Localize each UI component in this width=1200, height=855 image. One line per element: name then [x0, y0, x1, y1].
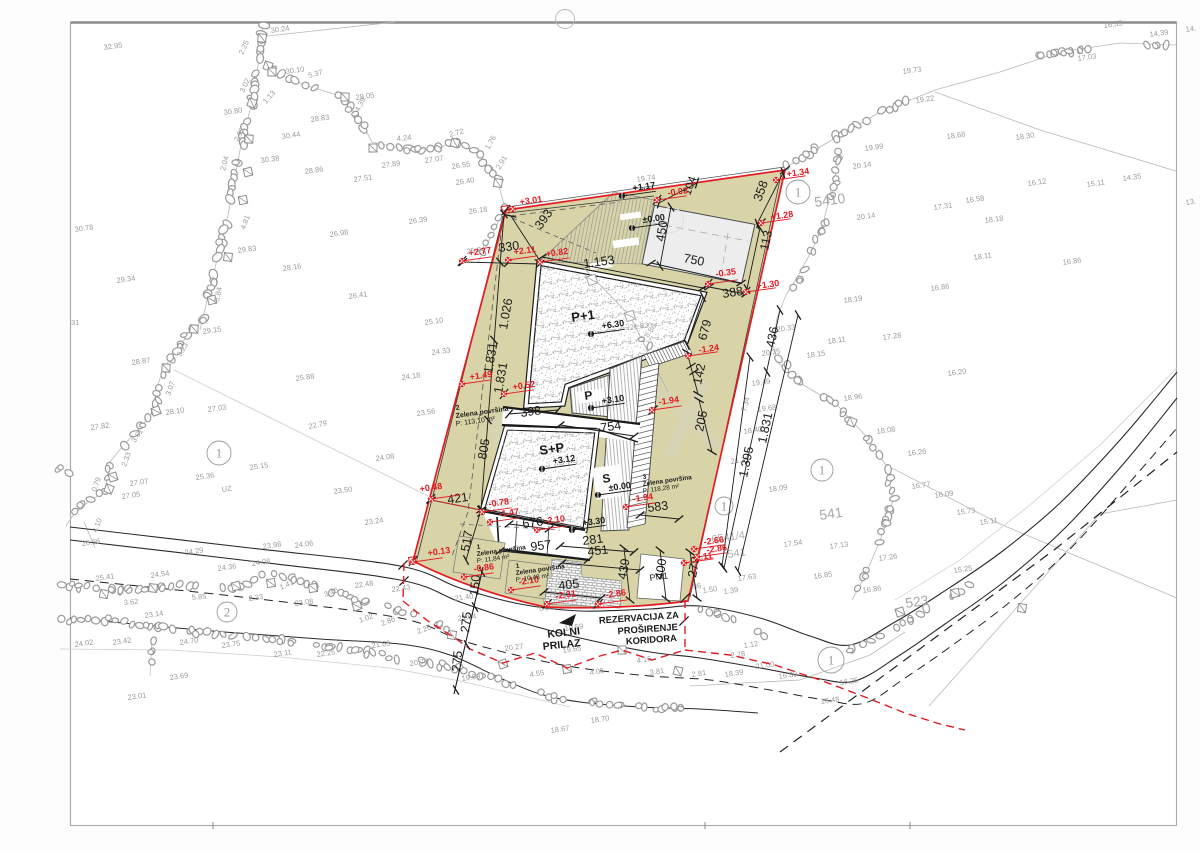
svg-text:5.85: 5.85	[191, 592, 206, 602]
svg-text:31: 31	[71, 318, 79, 327]
svg-text:523: 523	[904, 592, 930, 611]
svg-text:1: 1	[216, 446, 223, 461]
svg-text:UZ: UZ	[221, 484, 233, 494]
svg-text:14.: 14.	[1185, 24, 1197, 34]
svg-text:275: 275	[458, 611, 474, 633]
svg-text:13.: 13.	[1185, 197, 1197, 207]
svg-text:754: 754	[599, 418, 622, 435]
svg-text:451: 451	[587, 543, 609, 559]
svg-text:676: 676	[521, 514, 544, 531]
svg-text:1: 1	[721, 499, 728, 514]
svg-text:3.62: 3.62	[123, 597, 138, 607]
svg-text:4.24: 4.24	[396, 133, 411, 143]
svg-text:275: 275	[449, 650, 465, 672]
svg-text:2: 2	[224, 605, 231, 620]
svg-text:150: 150	[467, 574, 483, 596]
svg-text:1: 1	[819, 463, 826, 478]
svg-text:541: 541	[818, 504, 844, 523]
svg-text:398: 398	[519, 403, 542, 420]
svg-text:1: 1	[828, 653, 835, 668]
svg-text:1: 1	[795, 185, 802, 200]
svg-text:957: 957	[530, 538, 552, 554]
